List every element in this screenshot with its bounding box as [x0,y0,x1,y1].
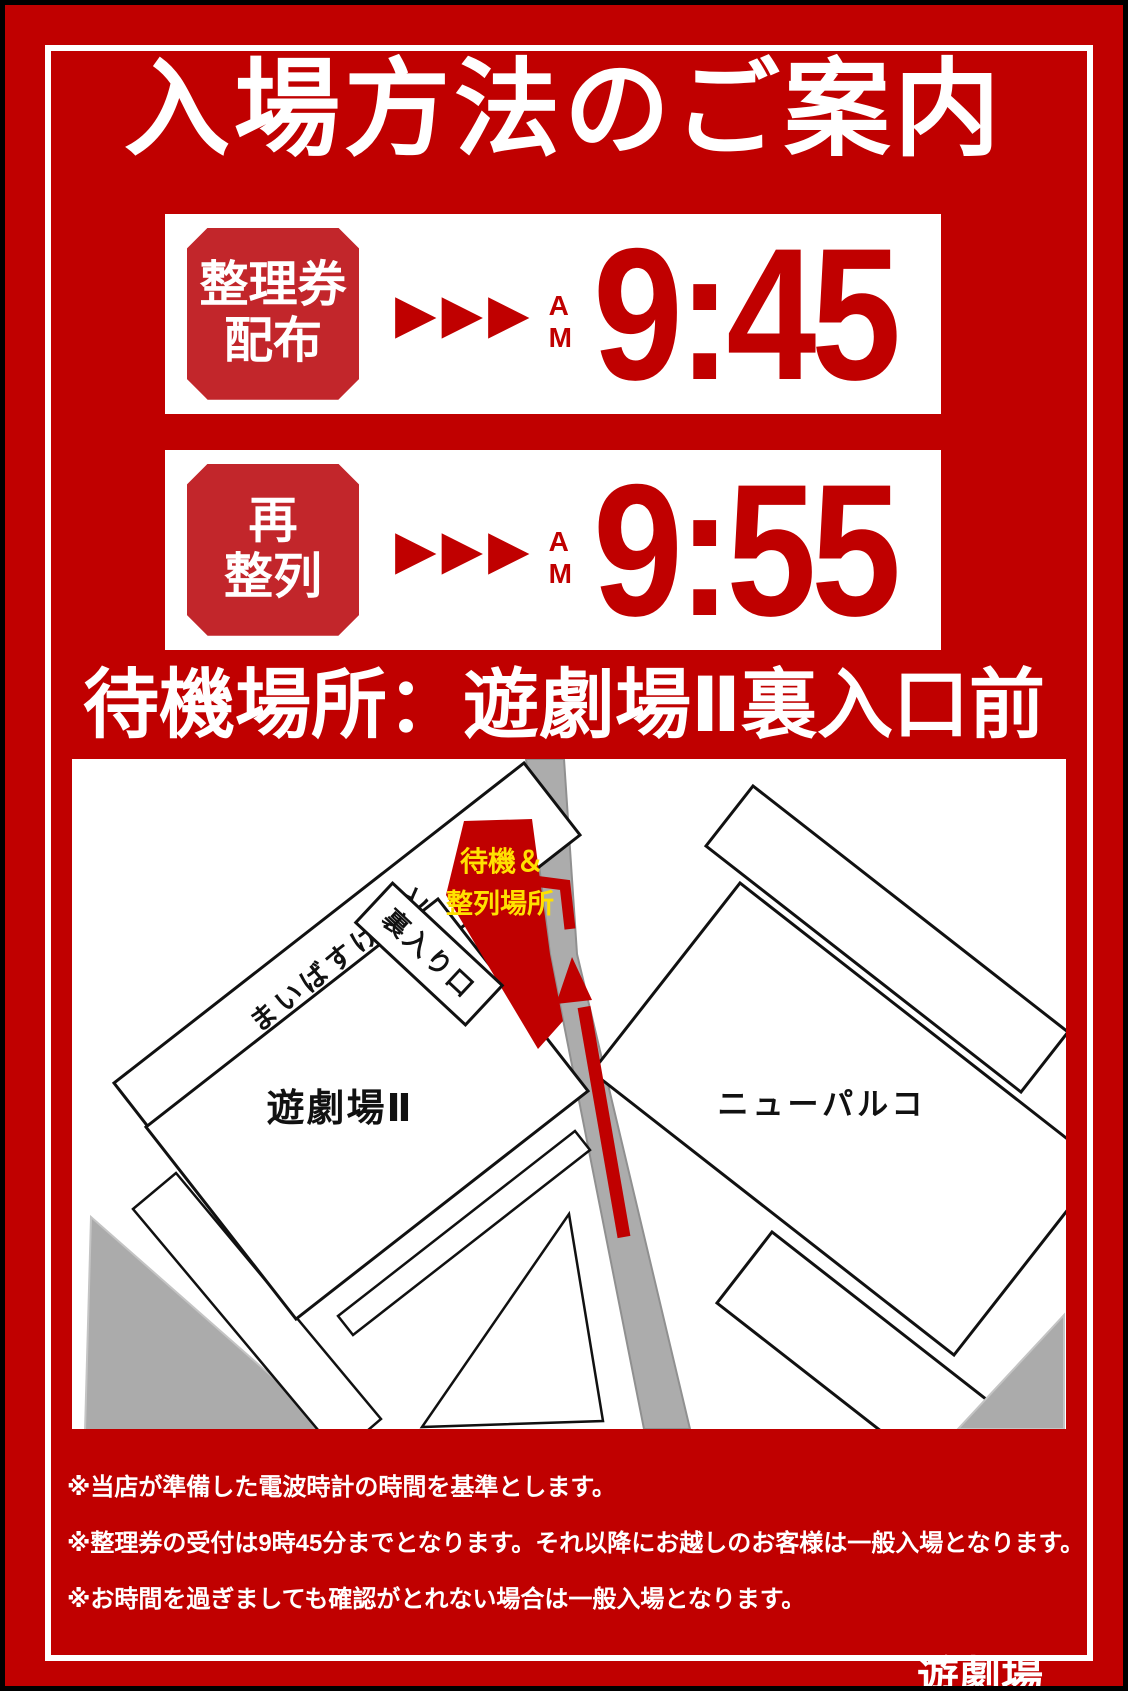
waiting-location-heading: 待機場所：遊劇場Ⅱ裏入口前 [5,658,1123,753]
schedule-row-ticket-distribution: 整理券 配布 ▶▶▶ AM 9:45 [165,214,941,414]
footnote-3: ※お時間を過ぎましても確認がとれない場合は一般入場となります。 [67,1583,1123,1617]
time-value: 9:45 [593,220,896,408]
triple-arrow-icon: ▶▶▶ [395,287,535,341]
badge-label-line2: 整列 [224,550,322,606]
schedule-row-relineup: 再 整列 ▶▶▶ AM 9:55 [165,450,941,650]
poster-content: 入場方法のご案内 整理券 配布 ▶▶▶ AM 9:45 再 整列 ▶▶▶ AM … [5,51,1123,1617]
badge-label-line2: 配布 [224,314,322,370]
map-overlay-layer: 裏入り口 待機＆ 整列場所 [72,759,1066,1429]
venue-signature: 遊劇場 [917,1643,1043,1691]
time-value: 9:55 [593,456,896,644]
route-arrow-head [556,957,592,1004]
access-map: まいばすけっと 遊劇場Ⅱ ニューパルコ 裏入り口 待機＆ [72,759,1066,1429]
poster-title: 入場方法のご案内 [5,51,1123,170]
badge-label-line1: 整理券 [199,258,346,314]
footnote-2: ※整理券の受付は9時45分までとなります。それ以降にお越しのお客様は一般入場とな… [67,1527,1123,1561]
footnotes: ※当店が準備した電波時計の時間を基準とします。 ※整理券の受付は9時45分までと… [67,1471,1123,1617]
relineup-badge: 再 整列 [187,464,359,636]
meridiem-label: AM [549,526,569,589]
entrance-guide-poster: 入場方法のご案内 整理券 配布 ▶▶▶ AM 9:45 再 整列 ▶▶▶ AM … [0,0,1128,1691]
route-arrow-shaft [584,1007,624,1237]
footnote-1: ※当店が準備した電波時計の時間を基準とします。 [67,1471,1123,1505]
meridiem-label: AM [549,290,569,353]
triple-arrow-icon: ▶▶▶ [395,523,535,577]
waiting-zone-label-line2: 整列場所 [446,889,554,919]
ticket-distribution-badge: 整理券 配布 [187,228,359,400]
badge-label-line1: 再 [248,494,297,550]
waiting-zone-label-line1: 待機＆ [460,846,544,877]
